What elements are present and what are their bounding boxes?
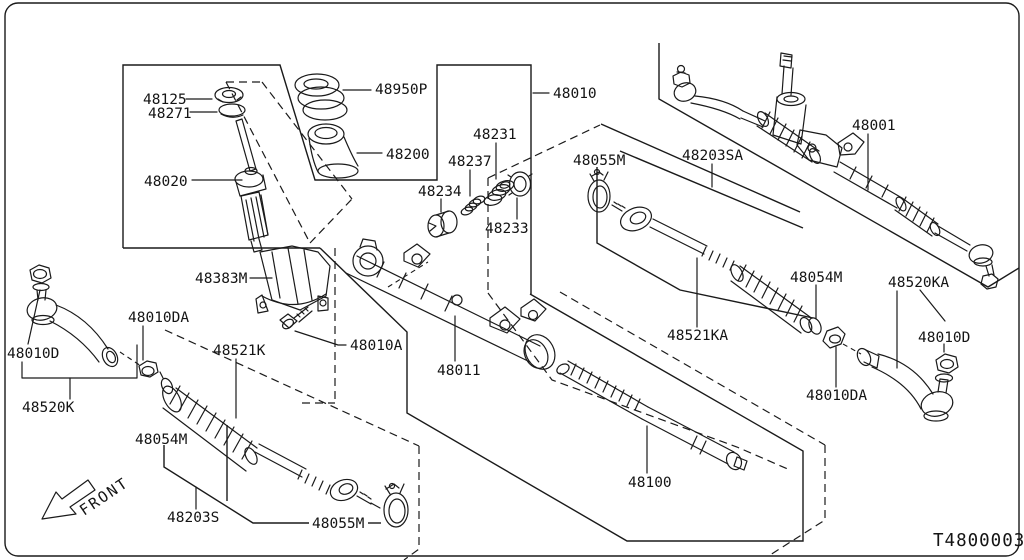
part-label-48055M-upper[interactable]: 48055M — [573, 153, 626, 169]
part-label-48521K[interactable]: 48521K — [213, 343, 266, 359]
part-label-48010[interactable]: 48010 — [553, 86, 597, 102]
part-label-48237[interactable]: 48237 — [448, 154, 492, 170]
part-label-48010D-right[interactable]: 48010D — [918, 330, 970, 346]
part-label-48521KA[interactable]: 48521KA — [667, 328, 728, 344]
page-background — [0, 0, 1024, 560]
part-label-48010A[interactable]: 48010A — [350, 338, 403, 354]
part-label-48520K[interactable]: 48520K — [22, 400, 75, 416]
part-label-48383M[interactable]: 48383M — [195, 271, 248, 287]
part-label-48234[interactable]: 48234 — [418, 184, 462, 200]
part-label-48950P[interactable]: 48950P — [375, 82, 428, 98]
part-label-48001[interactable]: 48001 — [852, 118, 896, 134]
part-label-48520KA[interactable]: 48520KA — [888, 275, 949, 291]
part-label-48010D-left[interactable]: 48010D — [7, 346, 59, 362]
part-label-48010DA-left[interactable]: 48010DA — [128, 310, 189, 326]
part-label-48054M-left[interactable]: 48054M — [135, 432, 188, 448]
diagram-canvas: FRONT 48125 48271 48020 48950P 48200 480… — [0, 0, 1024, 560]
part-label-48200[interactable]: 48200 — [386, 147, 430, 163]
part-label-48203S[interactable]: 48203S — [167, 510, 219, 526]
part-label-48010DA-right[interactable]: 48010DA — [806, 388, 867, 404]
part-label-48233[interactable]: 48233 — [485, 221, 529, 237]
part-label-48203SA[interactable]: 48203SA — [682, 148, 743, 164]
drawing-code: T4800003 — [933, 531, 1024, 551]
part-label-48231[interactable]: 48231 — [473, 127, 517, 143]
part-label-48011[interactable]: 48011 — [437, 363, 481, 379]
part-label-48054M-right[interactable]: 48054M — [790, 270, 843, 286]
part-label-48020[interactable]: 48020 — [144, 174, 188, 190]
parts-diagram-page: FRONT 48125 48271 48020 48950P 48200 480… — [0, 0, 1024, 560]
part-label-48055M-lower[interactable]: 48055M — [312, 516, 365, 532]
part-label-48100[interactable]: 48100 — [628, 475, 672, 491]
part-label-48271[interactable]: 48271 — [148, 106, 192, 122]
